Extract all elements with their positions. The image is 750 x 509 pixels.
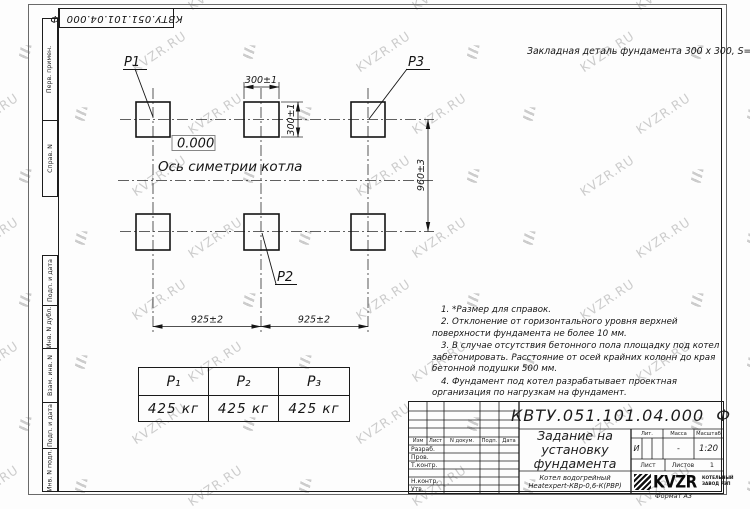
title-block: Изм Лист N докум. Подп. Дата Разраб. Про…	[408, 401, 724, 494]
load-table-header: P₁	[139, 368, 209, 396]
sheet-label: Лист	[631, 459, 665, 471]
foundation-pads	[136, 102, 385, 250]
point-label-p1: P1	[124, 55, 140, 70]
col-list: Лист	[427, 437, 444, 445]
dim-height-side: 300±1	[286, 103, 297, 135]
mass-label: Масса	[663, 429, 694, 438]
sheets-label: Листов	[665, 459, 701, 471]
row-utv: Утв.	[409, 485, 443, 493]
row-empty	[409, 469, 443, 477]
row-razrab: Разраб.	[409, 445, 443, 453]
note-4: 4. Фундамент под котел разрабатывает про…	[432, 377, 730, 400]
kvzr-logo-icon	[634, 474, 651, 490]
point-label-p3: P3	[408, 55, 424, 70]
dim-span-left: 925±2	[191, 315, 223, 326]
load-table-value: 425 кг	[139, 396, 209, 421]
load-table-value: 425 кг	[279, 396, 349, 421]
scale-label: Масштаб	[694, 429, 723, 438]
company-line1: КОТЕЛЬНЫЙ	[702, 476, 734, 482]
load-table-header: P₃	[279, 368, 349, 396]
format-label: Формат А3	[655, 492, 692, 500]
dim-height-total: 960±3	[416, 159, 427, 191]
load-table-value: 425 кг	[209, 396, 279, 421]
col-doc: N докум.	[444, 437, 480, 445]
note-2: 2. Отклонение от горизонтального уровня …	[432, 317, 730, 340]
scale-value: 1:20	[694, 438, 723, 459]
mass-value: -	[663, 438, 694, 459]
foundation-pad	[244, 214, 279, 250]
load-table-header: P₂	[209, 368, 279, 396]
product-name: Котел водогрейный Heatexpert-КВр-0,6-К(Р…	[521, 471, 629, 493]
load-table: P₁ P₂ P₃ 425 кг 425 кг 425 кг	[138, 367, 350, 422]
sheets-value: 1	[705, 459, 719, 471]
col-podp: Подп.	[480, 437, 499, 445]
point-label-p2: P2	[277, 270, 293, 285]
lit-value: И	[631, 438, 642, 459]
kvzr-logo-text: KVZR	[653, 472, 697, 492]
doc-number: КВТУ.051.101.04.000 Ф	[519, 402, 723, 429]
lit-label: Лит.	[631, 429, 663, 438]
embed-note: Закладная деталь фундамента 300 x 300, S…	[527, 46, 750, 57]
row-prov: Пров.	[409, 453, 443, 461]
notes-block: 1. *Размер для справок. 2. Отклонение от…	[432, 305, 730, 401]
elevation-label: 0.000	[177, 137, 214, 152]
drawing-sheet: Перв. примен. Справ. N Подп. и дата Инв.…	[0, 0, 750, 500]
axis-label: Ось симетрии котла	[158, 159, 302, 175]
drawing-title: Задание на установку фундамента	[521, 429, 629, 471]
centerlines	[118, 88, 434, 333]
note-1: 1. *Размер для справок.	[432, 305, 730, 316]
dim-width-top: 300±1	[245, 75, 277, 86]
row-nkontr: Н.контр.	[409, 477, 443, 485]
company-line2: ЗАВОД РЭП	[702, 482, 734, 488]
col-izm: Изм	[409, 437, 427, 445]
row-tkontr: Т.контр.	[409, 461, 443, 469]
company-name: КОТЕЛЬНЫЙ ЗАВОД РЭП	[702, 476, 734, 488]
note-3: 3. В случае отсутствия бетонного пола пл…	[432, 341, 730, 375]
col-data: Дата	[499, 437, 519, 445]
dim-span-right: 925±2	[298, 315, 330, 326]
